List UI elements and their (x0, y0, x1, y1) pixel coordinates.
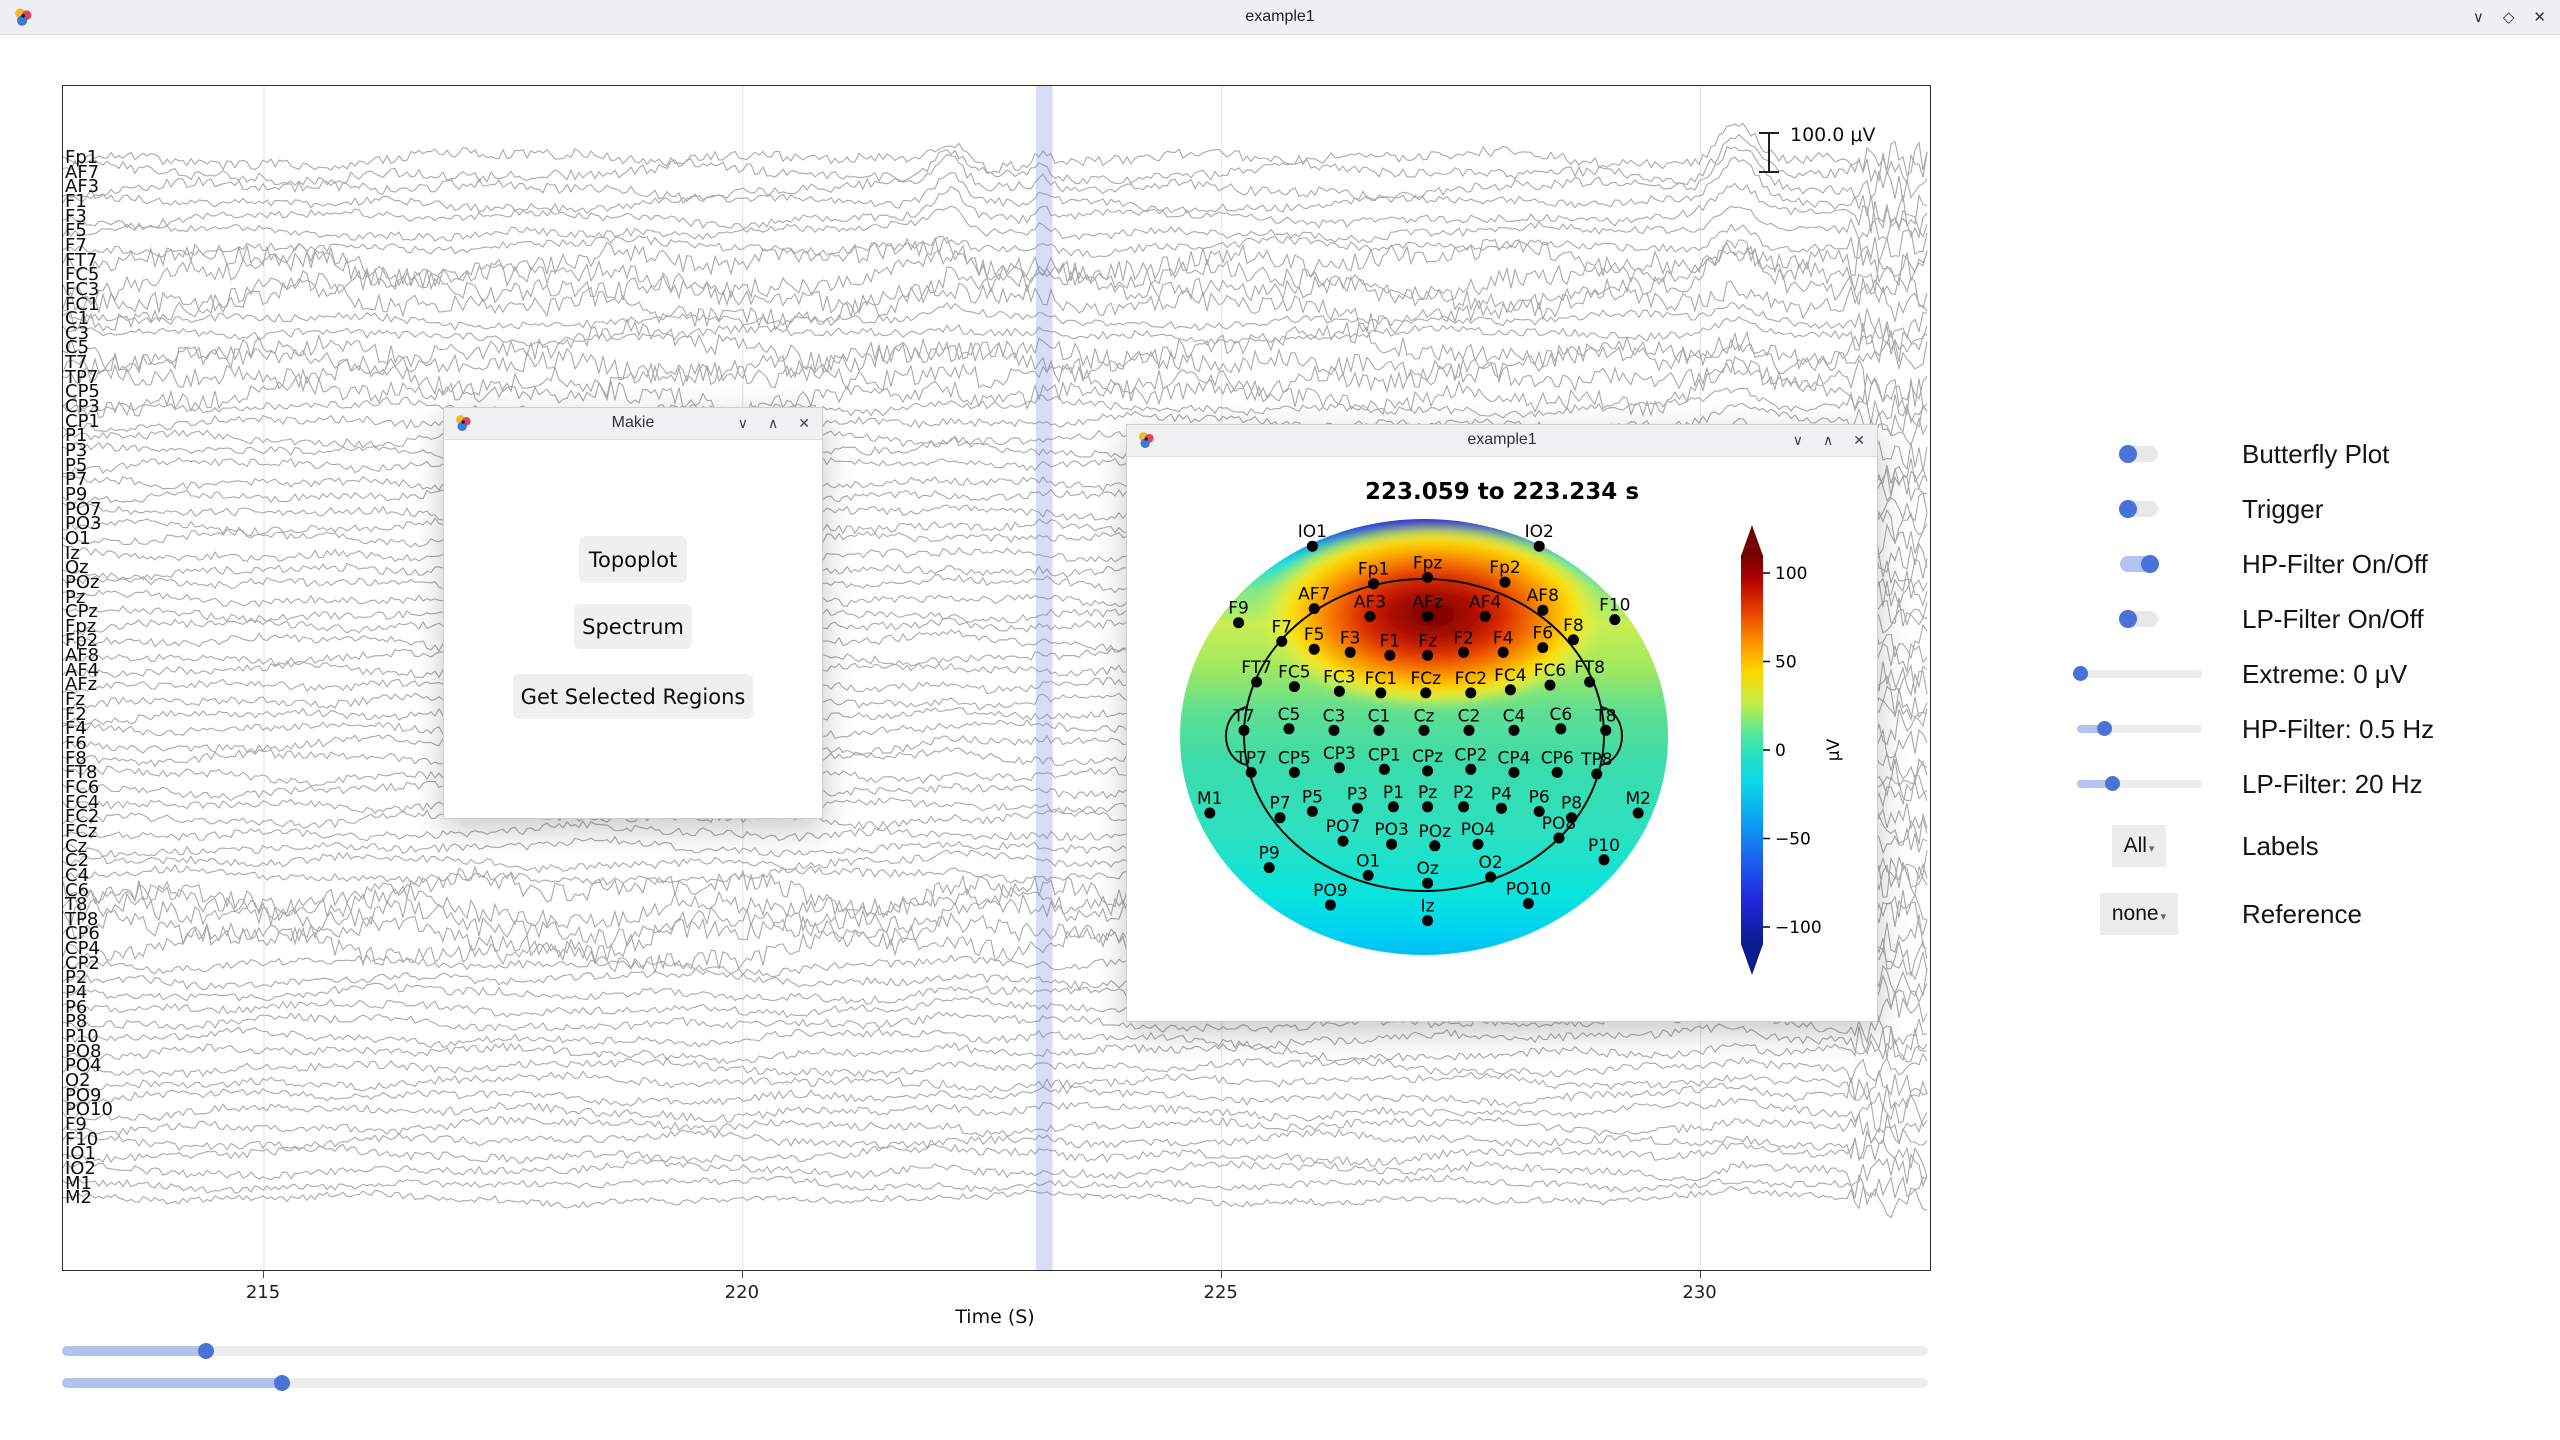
chevron-down-icon: ▾ (2149, 843, 2155, 855)
electrode-label-p8: P8 (1561, 794, 1582, 814)
electrode-label-oz: Oz (1416, 859, 1438, 879)
close-icon[interactable]: ✕ (2533, 8, 2546, 26)
electrode-af4[interactable] (1480, 611, 1491, 622)
electrode-p9[interactable] (1264, 862, 1275, 873)
electrode-io2[interactable] (1534, 541, 1545, 552)
electrode-label-fc1: FC1 (1365, 669, 1397, 689)
electrode-oz[interactable] (1422, 878, 1433, 889)
control-row-lp-filter-20-hz: LP-Filter: 20 Hz (2060, 762, 2530, 806)
control-row-hp-filter-on-off: HP-Filter On/Off (2060, 542, 2530, 586)
x-tick-mark-230 (1700, 1270, 1701, 1278)
electrode-fc1[interactable] (1375, 687, 1386, 698)
channel-label-m2: M2 (65, 1189, 92, 1207)
selection-band[interactable] (1036, 86, 1053, 1270)
electrode-label-f4: F4 (1493, 628, 1514, 648)
electrode-f5[interactable] (1309, 644, 1320, 655)
bottom-slider-2[interactable] (62, 1378, 1928, 1388)
time-axis-label: Time (S) (955, 1306, 1034, 1328)
topoplot-window-title: example1 (1127, 431, 1877, 449)
electrode-label-f8: F8 (1563, 616, 1584, 636)
electrode-f3[interactable] (1345, 647, 1356, 658)
minimize-icon[interactable]: ∨ (1793, 432, 1803, 449)
control-label-hp-filter-0-5-hz: HP-Filter: 0.5 Hz (2242, 714, 2434, 745)
maximize-icon[interactable]: ∧ (768, 415, 778, 432)
electrode-c4[interactable] (1509, 725, 1520, 736)
electrode-label-t7: T7 (1232, 706, 1254, 726)
spectrum-button[interactable]: Spectrum (574, 604, 692, 649)
amplitude-scale-bar (1759, 132, 1779, 173)
minimize-icon[interactable]: ∨ (738, 415, 748, 432)
electrode-label-ft8: FT8 (1574, 658, 1605, 678)
electrode-label-af4: AF4 (1469, 592, 1501, 612)
control-label-lp-filter-20-hz: LP-Filter: 20 Hz (2242, 769, 2423, 800)
slider-extreme-0-v[interactable] (2077, 670, 2202, 678)
control-row-labels: All▾Labels (2060, 824, 2530, 868)
bottom-slider-knob[interactable] (198, 1343, 214, 1359)
electrode-f9[interactable] (1233, 617, 1244, 628)
electrode-fp1[interactable] (1368, 578, 1379, 589)
electrode-label-p10: P10 (1588, 836, 1620, 856)
slider-knob[interactable] (2097, 721, 2112, 736)
x-tick-mark-215 (263, 1270, 264, 1278)
amplitude-scale-label: 100.0 μV (1790, 124, 1876, 146)
electrode-ft8[interactable] (1584, 677, 1595, 688)
electrode-po3[interactable] (1386, 839, 1397, 850)
topoplot-button[interactable]: Topoplot (579, 536, 687, 583)
electrode-label-o2: O2 (1478, 853, 1502, 873)
makie-window-titlebar[interactable]: Makie ∨ ∧ ✕ (444, 408, 822, 440)
control-row-trigger: Trigger (2060, 487, 2530, 531)
electrode-p7[interactable] (1275, 812, 1286, 823)
control-label-butterfly-plot: Butterfly Plot (2242, 439, 2389, 470)
electrode-label-f3: F3 (1340, 628, 1361, 648)
electrode-label-fc5: FC5 (1278, 663, 1310, 683)
slider-hp-filter-0-5-hz[interactable] (2077, 725, 2202, 733)
electrode-label-io1: IO1 (1298, 522, 1327, 542)
close-icon[interactable]: ✕ (798, 415, 810, 432)
application-root: example1 ∨ ◇ ✕ Fp1AF7AF3F1F3F5F7FT7FC5FC… (0, 0, 2560, 1440)
electrode-label-f1: F1 (1379, 631, 1400, 651)
toggle-knob[interactable] (2119, 445, 2137, 463)
x-tick-label-225: 225 (1204, 1282, 1238, 1303)
colorbar-top-arrow (1741, 525, 1763, 556)
electrode-label-fp2: Fp2 (1489, 558, 1520, 578)
colorbar-tick-100: 100 (1775, 564, 1807, 584)
electrode-afz[interactable] (1422, 611, 1433, 622)
electrode-label-cz: Cz (1414, 706, 1435, 726)
control-label-trigger: Trigger (2242, 494, 2323, 525)
control-label-lp-filter-on-off: LP-Filter On/Off (2242, 604, 2424, 635)
electrode-af7[interactable] (1309, 603, 1320, 614)
control-row-reference: none▾Reference (2060, 892, 2530, 936)
electrode-label-o1: O1 (1356, 851, 1380, 871)
electrode-f2[interactable] (1458, 647, 1469, 658)
electrode-label-fpz: Fpz (1413, 553, 1443, 573)
electrode-cp2[interactable] (1465, 764, 1476, 775)
electrode-label-p4: P4 (1491, 784, 1512, 804)
menu-reference[interactable]: none▾ (2100, 893, 2178, 935)
electrode-f7[interactable] (1276, 636, 1287, 647)
electrode-label-fc4: FC4 (1494, 666, 1526, 686)
electrode-fc3[interactable] (1334, 686, 1345, 697)
main-titlebar[interactable]: example1 ∨ ◇ ✕ (0, 0, 2560, 35)
electrode-label-p5: P5 (1302, 787, 1323, 807)
control-row-butterfly-plot: Butterfly Plot (2060, 432, 2530, 476)
electrode-iz[interactable] (1422, 915, 1433, 926)
colorbar-tick--50: −50 (1775, 830, 1811, 850)
electrode-label-po4: PO4 (1461, 820, 1495, 840)
main-window-title: example1 (0, 8, 2560, 26)
electrode-label-f2: F2 (1453, 628, 1474, 648)
electrode-c2[interactable] (1464, 725, 1475, 736)
electrode-label-cp2: CP2 (1454, 745, 1487, 765)
electrode-label-poz: POz (1419, 822, 1452, 842)
electrode-label-m1: M1 (1197, 789, 1222, 809)
electrode-label-fc3: FC3 (1323, 667, 1355, 687)
electrode-label-p3: P3 (1347, 784, 1368, 804)
electrode-af3[interactable] (1365, 611, 1376, 622)
electrode-label-f10: F10 (1599, 596, 1630, 616)
toggle-lp-filter-on-off[interactable] (2120, 611, 2158, 627)
electrode-fc4[interactable] (1505, 684, 1516, 695)
electrode-ft7[interactable] (1251, 677, 1262, 688)
colorbar-bottom-arrow (1741, 944, 1763, 975)
electrode-tp7[interactable] (1246, 767, 1257, 778)
bottom-slider-knob[interactable] (274, 1375, 290, 1391)
bottom-slider-fill (62, 1378, 282, 1388)
electrode-p4[interactable] (1496, 803, 1507, 814)
electrode-label-c4: C4 (1503, 706, 1526, 726)
electrode-cp5[interactable] (1289, 767, 1300, 778)
control-row-lp-filter-on-off: LP-Filter On/Off (2060, 597, 2530, 641)
electrode-label-ft7: FT7 (1241, 658, 1272, 678)
electrode-t7[interactable] (1239, 725, 1250, 736)
electrode-poz[interactable] (1429, 840, 1440, 851)
toggle-trigger[interactable] (2120, 501, 2158, 517)
electrode-label-c5: C5 (1278, 705, 1301, 725)
electrode-label-f6: F6 (1532, 624, 1553, 644)
electrode-label-af3: AF3 (1354, 592, 1386, 612)
colorbar-tick--100: −100 (1775, 918, 1822, 938)
control-label-labels: Labels (2242, 831, 2319, 862)
electrode-po7[interactable] (1338, 836, 1349, 847)
electrode-p10[interactable] (1599, 854, 1610, 865)
close-icon[interactable]: ✕ (1853, 432, 1865, 449)
electrode-fc5[interactable] (1289, 681, 1300, 692)
control-row-extreme-0-v: Extreme: 0 μV (2060, 652, 2530, 696)
electrode-f6[interactable] (1537, 642, 1548, 653)
topoplot-time-range-heading: 223.059 to 223.234 s (1127, 479, 1877, 505)
electrode-label-tp8: TP8 (1580, 750, 1612, 770)
electrode-tp8[interactable] (1591, 769, 1602, 780)
electrode-label-f7: F7 (1271, 617, 1292, 637)
electrode-label-po3: PO3 (1374, 820, 1408, 840)
minimize-icon[interactable]: ∨ (2473, 8, 2484, 26)
electrode-cp4[interactable] (1509, 767, 1520, 778)
electrode-label-io2: IO2 (1525, 522, 1554, 542)
electrode-p2[interactable] (1458, 801, 1469, 812)
topoplot-figure: IO1IO2Fp1FpzFp2AF7AF3AFzAF4AF8F9F10F7F5F… (1135, 515, 1695, 985)
electrode-f1[interactable] (1384, 650, 1395, 661)
slider-knob[interactable] (2105, 776, 2120, 791)
colorbar-gradient (1741, 555, 1763, 945)
electrode-m1[interactable] (1204, 808, 1215, 819)
electrode-po8[interactable] (1554, 833, 1565, 844)
control-panel: Butterfly PlotTriggerHP-Filter On/OffLP-… (2060, 420, 2530, 960)
electrode-label-po10: PO10 (1506, 880, 1551, 900)
x-tick-label-230: 230 (1682, 1282, 1716, 1303)
electrode-cp6[interactable] (1552, 767, 1563, 778)
toggle-knob[interactable] (2119, 500, 2137, 518)
maximize-icon[interactable]: ∧ (1823, 432, 1833, 449)
electrode-label-m2: M2 (1625, 789, 1650, 809)
electrode-label-po9: PO9 (1313, 881, 1347, 901)
control-label-hp-filter-on-off: HP-Filter On/Off (2242, 549, 2428, 580)
electrode-label-pz: Pz (1418, 783, 1437, 803)
colorbar: 100500−50−100 μV (1727, 515, 1877, 985)
electrode-label-po7: PO7 (1326, 817, 1360, 837)
electrode-af8[interactable] (1537, 605, 1548, 616)
topoplot-window-titlebar[interactable]: example1 ∨ ∧ ✕ (1127, 425, 1877, 457)
electrode-po4[interactable] (1473, 839, 1484, 850)
control-label-extreme-0-v: Extreme: 0 μV (2242, 659, 2407, 690)
electrode-label-c3: C3 (1323, 706, 1346, 726)
electrode-label-c2: C2 (1458, 706, 1481, 726)
electrode-label-fc2: FC2 (1455, 669, 1487, 689)
toggle-knob[interactable] (2141, 555, 2159, 573)
electrode-m2[interactable] (1633, 808, 1644, 819)
x-tick-mark-225 (1221, 1270, 1222, 1278)
topoplot-window: example1 ∨ ∧ ✕ 223.059 to 223.234 s (1126, 424, 1878, 1022)
electrode-label-fc6: FC6 (1534, 661, 1566, 681)
chevron-down-icon: ▾ (2161, 911, 2167, 923)
electrode-label-cp1: CP1 (1368, 745, 1401, 765)
electrode-label-af8: AF8 (1527, 586, 1559, 606)
electrode-label-c1: C1 (1368, 706, 1391, 726)
colorbar-tick-0: 0 (1775, 741, 1786, 761)
electrode-cpz[interactable] (1422, 765, 1433, 776)
electrode-label-po8: PO8 (1542, 814, 1576, 834)
electrode-fc6[interactable] (1545, 680, 1556, 691)
colorbar-unit-label: μV (1824, 738, 1844, 761)
electrode-c3[interactable] (1329, 725, 1340, 736)
electrode-label-cp6: CP6 (1541, 748, 1574, 768)
electrode-label-fcz: FCz (1411, 669, 1442, 689)
electrode-fp2[interactable] (1500, 577, 1511, 588)
toggle-butterfly-plot[interactable] (2120, 446, 2158, 462)
electrode-pz[interactable] (1422, 801, 1433, 812)
electrode-f8[interactable] (1568, 634, 1579, 645)
electrode-c5[interactable] (1284, 723, 1295, 734)
electrode-label-c6: C6 (1549, 705, 1572, 725)
electrode-label-fz: Fz (1418, 631, 1437, 651)
electrode-f4[interactable] (1498, 647, 1509, 658)
electrode-p3[interactable] (1352, 803, 1363, 814)
electrode-label-cp3: CP3 (1323, 744, 1356, 764)
electrode-o1[interactable] (1363, 870, 1374, 881)
electrode-label-p1: P1 (1383, 783, 1404, 803)
electrode-fpz[interactable] (1422, 572, 1433, 583)
electrode-label-cp4: CP4 (1498, 748, 1531, 768)
toggle-hp-filter-on-off[interactable] (2120, 556, 2158, 572)
makie-window: Makie ∨ ∧ ✕ Topoplot Spectrum Get Select… (443, 407, 823, 819)
electrode-cz[interactable] (1419, 725, 1430, 736)
control-row-hp-filter-0-5-hz: HP-Filter: 0.5 Hz (2060, 707, 2530, 751)
electrode-f10[interactable] (1609, 614, 1620, 625)
electrode-label-afz: AFz (1412, 592, 1442, 612)
electrode-label-p6: P6 (1529, 787, 1550, 807)
x-tick-label-215: 215 (246, 1282, 280, 1303)
get-selected-regions-button[interactable]: Get Selected Regions (513, 674, 753, 719)
bottom-slider-1[interactable] (62, 1346, 1928, 1356)
electrode-label-tp7: TP7 (1234, 748, 1266, 768)
electrode-label-p7: P7 (1269, 794, 1290, 814)
electrode-cp3[interactable] (1334, 762, 1345, 773)
electrode-c1[interactable] (1374, 725, 1385, 736)
toggle-knob[interactable] (2119, 610, 2137, 628)
electrode-p1[interactable] (1388, 801, 1399, 812)
electrode-label-cp5: CP5 (1278, 748, 1311, 768)
electrode-label-p9: P9 (1259, 844, 1280, 864)
electrode-io1[interactable] (1307, 541, 1318, 552)
electrode-c6[interactable] (1555, 723, 1566, 734)
electrode-label-f5: F5 (1304, 625, 1325, 645)
electrode-o2[interactable] (1485, 872, 1496, 883)
electrode-label-f9: F9 (1228, 599, 1249, 619)
electrode-t8[interactable] (1600, 725, 1611, 736)
x-tick-label-220: 220 (725, 1282, 759, 1303)
electrode-cp1[interactable] (1379, 764, 1390, 775)
electrode-label-iz: Iz (1421, 897, 1435, 917)
electrode-fcz[interactable] (1420, 687, 1431, 698)
colorbar-tick-50: 50 (1775, 653, 1797, 673)
slider-lp-filter-20-hz[interactable] (2077, 780, 2202, 788)
electrode-label-fp1: Fp1 (1358, 560, 1389, 580)
electrode-label-cpz: CPz (1412, 747, 1443, 767)
electrode-p5[interactable] (1307, 806, 1318, 817)
menu-labels[interactable]: All▾ (2112, 825, 2167, 867)
maximize-icon[interactable]: ◇ (2503, 8, 2515, 26)
electrode-po9[interactable] (1325, 900, 1336, 911)
electrode-fz[interactable] (1422, 650, 1433, 661)
electrode-label-af7: AF7 (1298, 585, 1330, 605)
electrode-fc2[interactable] (1465, 687, 1476, 698)
control-label-reference: Reference (2242, 899, 2362, 930)
electrode-po10[interactable] (1523, 898, 1534, 909)
bottom-slider-fill (62, 1346, 206, 1356)
electrode-label-p2: P2 (1453, 783, 1474, 803)
electrode-label-t8: T8 (1594, 706, 1616, 726)
slider-knob[interactable] (2073, 666, 2088, 681)
x-tick-mark-220 (742, 1270, 743, 1278)
